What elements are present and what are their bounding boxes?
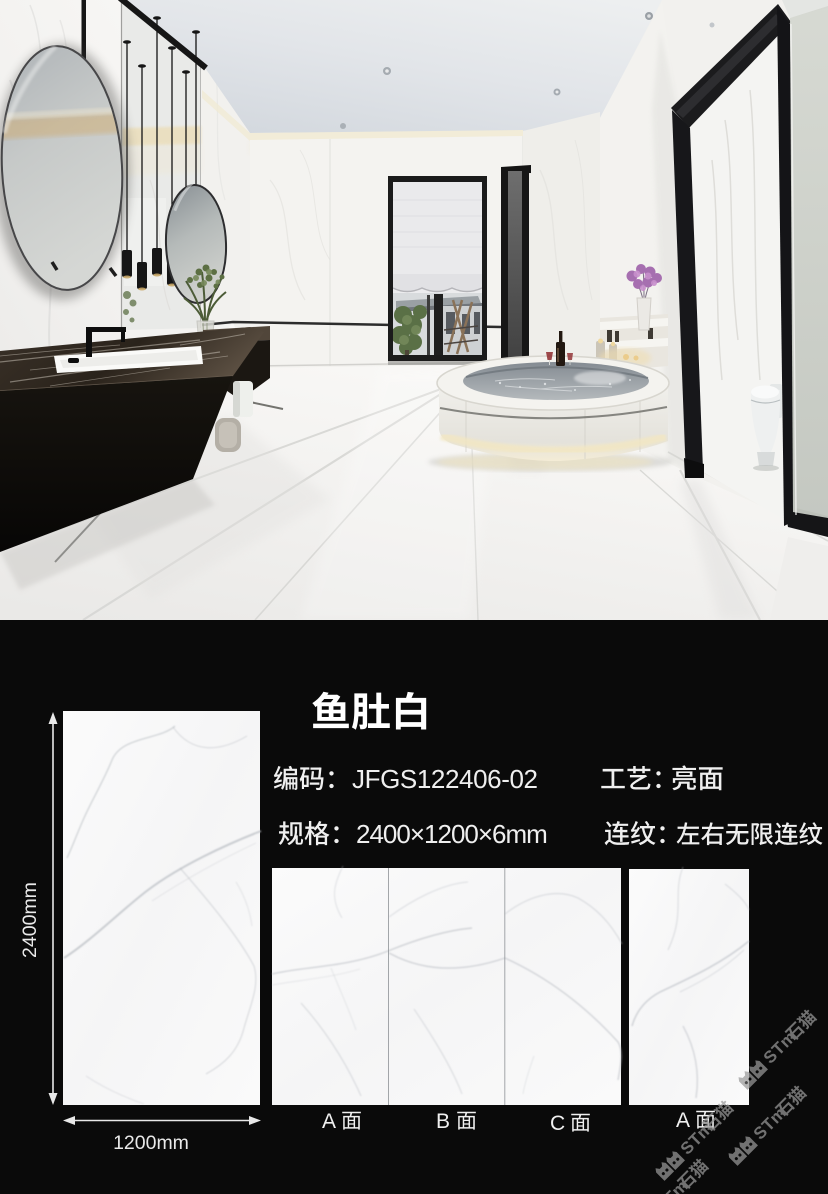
svg-text:C: C [550, 1112, 565, 1135]
svg-text:A: A [676, 1109, 690, 1132]
svg-text:2400mm: 2400mm [19, 882, 41, 958]
svg-text:JFGS122406-02: JFGS122406-02 [352, 764, 538, 794]
svg-text:2400×1200×6mm: 2400×1200×6mm [356, 819, 547, 849]
svg-text:B: B [436, 1110, 450, 1133]
svg-text:1200mm: 1200mm [113, 1132, 189, 1154]
svg-text:A: A [322, 1110, 336, 1133]
